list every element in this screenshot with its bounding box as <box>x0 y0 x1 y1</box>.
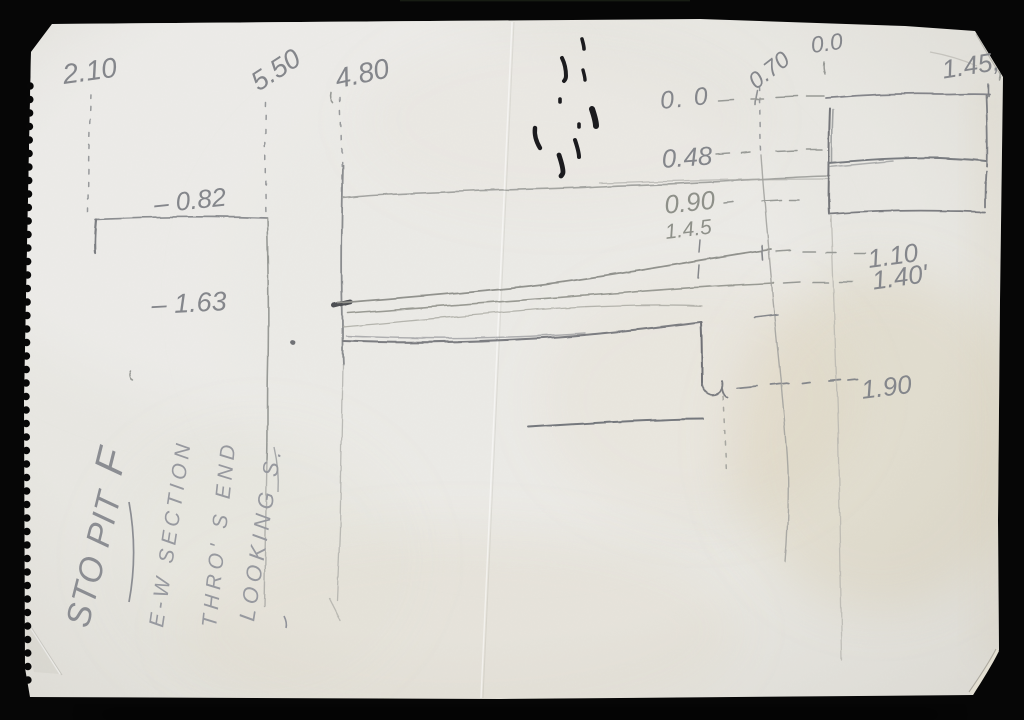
svg-text:– 1.63: – 1.63 <box>150 286 228 320</box>
svg-text:0.48: 0.48 <box>661 140 714 173</box>
svg-text:0.0: 0.0 <box>809 28 844 58</box>
svg-text:0. 0: 0. 0 <box>659 82 711 115</box>
svg-text:0.90: 0.90 <box>663 185 717 220</box>
svg-text:1.90: 1.90 <box>859 369 913 405</box>
